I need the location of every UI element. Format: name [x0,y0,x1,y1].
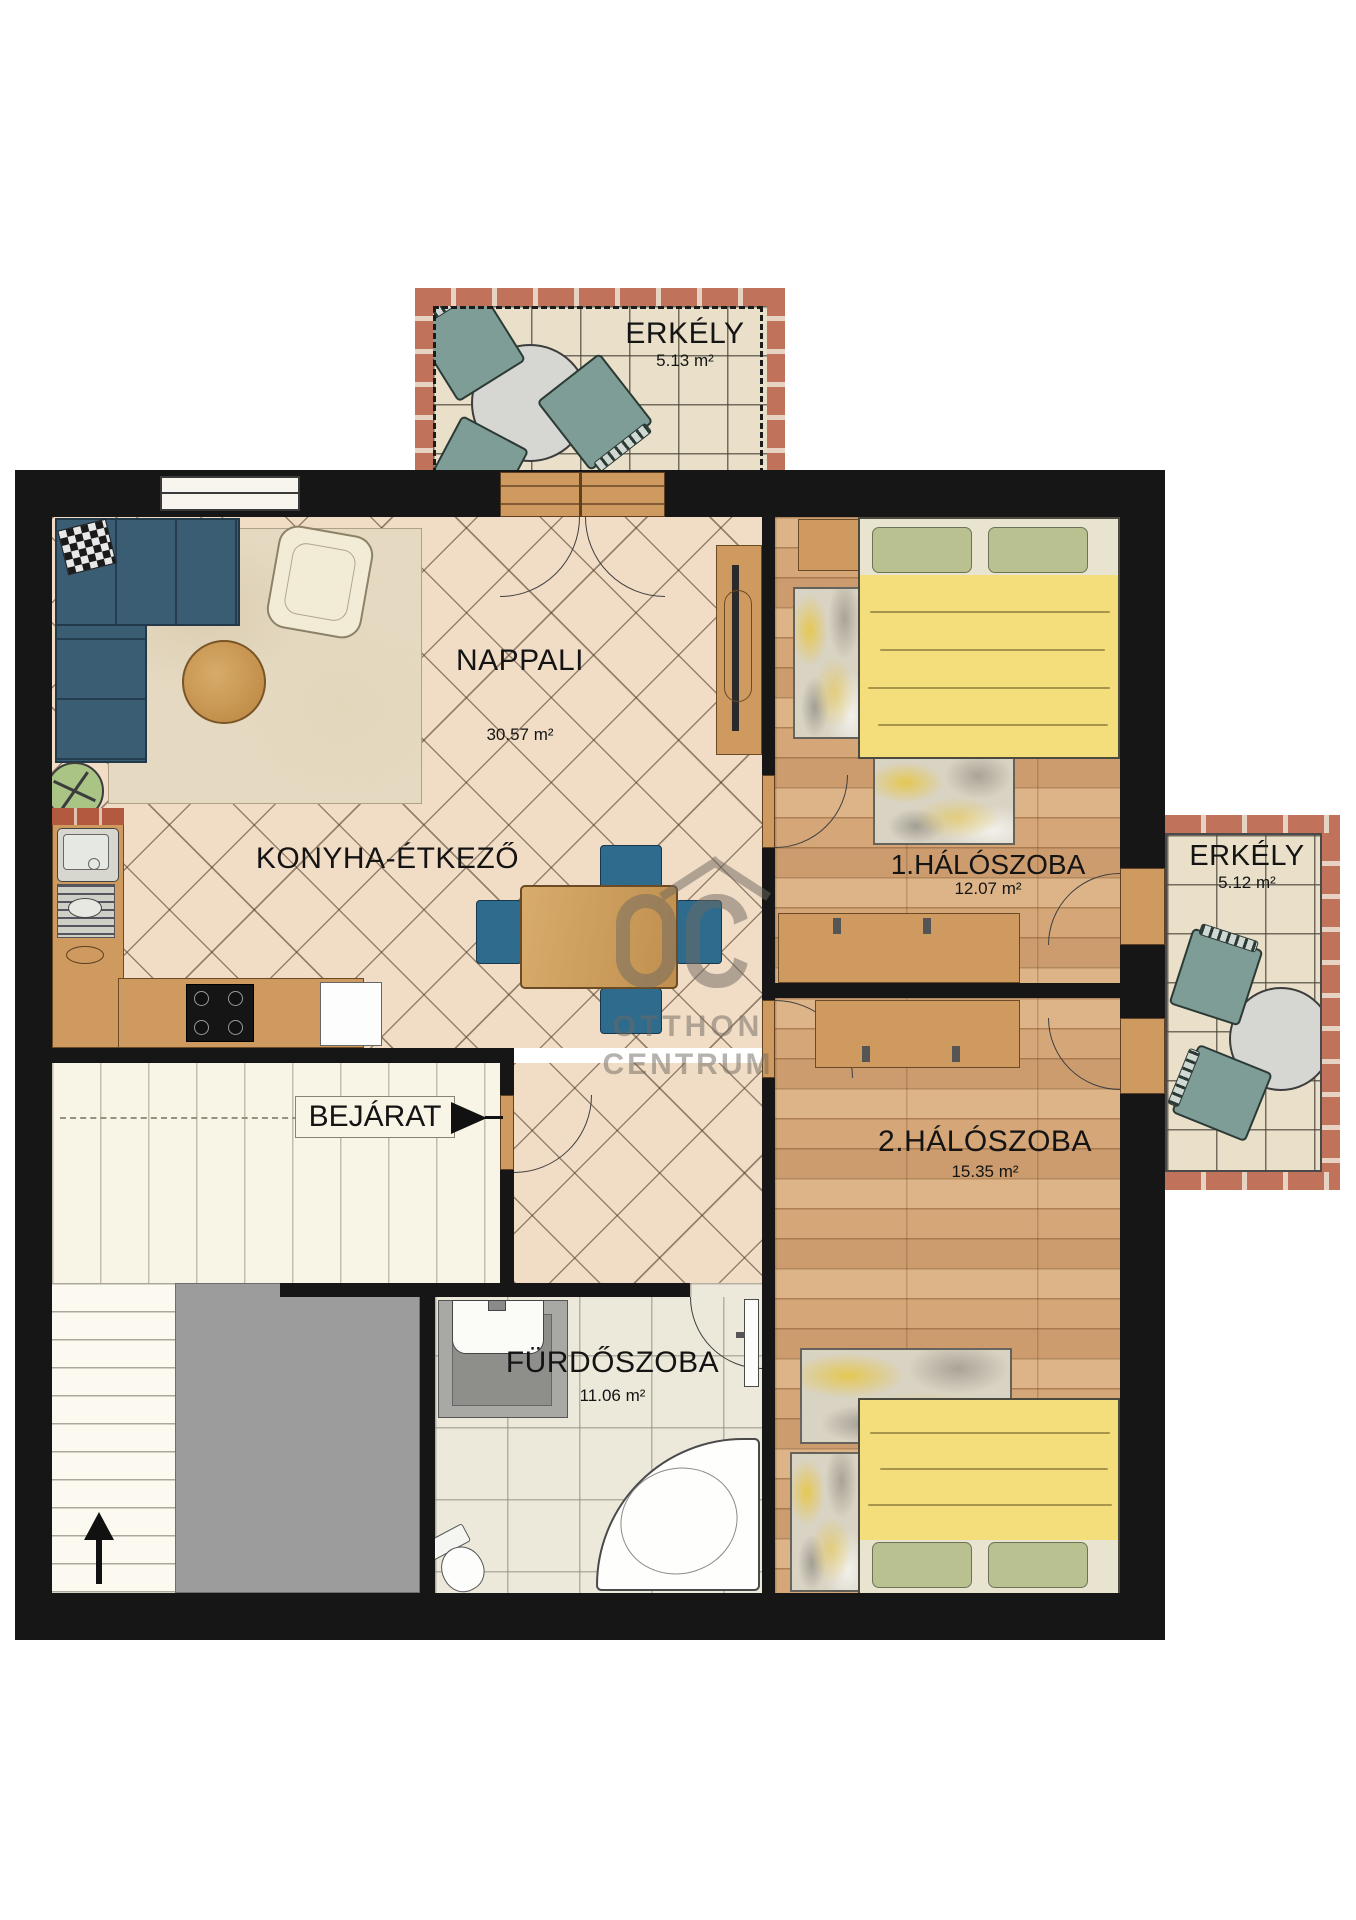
kitchen-sink-drain [88,858,100,870]
dining-table [520,885,678,989]
wardrobe-handle [952,1046,960,1062]
blanket-fold [870,611,1110,613]
room-area-bathroom: 11.06 m² [490,1387,735,1405]
door-handle [736,1332,745,1338]
staircase-void [175,1283,420,1593]
blanket-fold [868,1504,1112,1506]
balcony-top-brick-top [415,288,785,306]
wall-kitchen-hall [15,1048,514,1063]
dining-chair [476,900,522,964]
blanket-fold [870,1432,1110,1434]
kitchen-shelf-brick [52,808,124,825]
balcony-right-brick-right [1322,833,1340,1172]
balcony-right-brick-top [1165,815,1340,833]
wall-bedroom-divider [775,983,1120,998]
bedroom1-bed [858,517,1120,759]
bedroom2-balcony-door [1120,1018,1165,1094]
room-label-bedroom1: 1.HÁLÓSZOBA [868,850,1108,879]
window [160,476,300,511]
room-area-living: 30.57 m² [440,726,600,744]
bedroom2-bed [858,1398,1120,1594]
bedroom1-wardrobe [778,913,1020,983]
balcony-top-brick-left [415,288,433,472]
cooktop-burner [228,1020,243,1035]
blanket-fold [868,687,1110,689]
balcony-door-top [500,472,665,517]
bedroom2-side-rug [790,1452,860,1592]
floor-plan: ERKÉLY 5.13 m² ERKÉLY 5.12 m² [0,0,1356,1920]
bedroom1-foot-rug [873,757,1015,845]
bed-pillow [988,527,1088,573]
wall-bath-top [280,1283,690,1297]
wall-outer-bottom [15,1593,1165,1640]
bed-pillow [872,1542,972,1588]
room-label-bedroom2: 2.HÁLÓSZOBA [865,1126,1105,1158]
stairs-up-arrow-stem [96,1538,102,1584]
room-label-bathroom: FÜRDŐSZOBA [490,1347,735,1379]
blanket-fold [878,724,1108,726]
room-label-balcony-top: ERKÉLY [600,318,770,350]
dish-rack-bowl [68,898,102,918]
bathroom-door-threshold [690,1283,762,1297]
bedroom2-door [762,1000,775,1078]
wall-hall-stub-top [500,1063,514,1095]
entrance-arrow-line [485,1116,503,1119]
blanket-fold [880,1468,1108,1470]
bedroom1-side-rug [793,587,863,739]
bedroom1-balcony-door [1120,868,1165,945]
kitchen-sink-basin [63,834,109,870]
bedroom1-door [762,775,775,848]
wardrobe-handle [862,1046,870,1062]
dining-chair [600,988,662,1034]
staircase-steps [52,1283,175,1593]
room-area-balcony-right: 5.12 m² [1172,874,1322,892]
nightstand [798,519,860,571]
sink-faucet [488,1300,506,1311]
coffee-table [182,640,266,724]
entrance-arrow-icon [451,1102,487,1134]
bathroom-door-leaf [744,1299,759,1387]
armchair-cushion [282,541,358,623]
blanket-fold [880,649,1105,651]
room-label-entrance: BEJÁRAT [297,1101,453,1133]
wall-bath-left [420,1283,435,1595]
balcony-top-brick-right [767,288,785,472]
room-area-bedroom2: 15.35 m² [865,1163,1105,1181]
entry-door [500,1095,514,1170]
balcony-right-brick-bottom [1165,1172,1340,1190]
bedroom2-wardrobe [815,1000,1020,1068]
bed-pillow [988,1542,1088,1588]
tv-cabinet-detail [724,590,752,702]
stairs-up-arrow-icon [84,1512,114,1540]
room-label-living: NAPPALI [440,645,600,677]
room-area-bedroom1: 12.07 m² [868,880,1108,898]
wardrobe-handle [923,918,931,934]
room-label-balcony-right: ERKÉLY [1172,841,1322,871]
cooktop-burner [194,991,209,1006]
room-label-kitchen: KONYHA-ÉTKEZŐ [230,843,545,875]
kitchen-drawer-oval [66,946,104,964]
dining-chair [676,900,722,964]
wardrobe-handle [833,918,841,934]
room-area-balcony-top: 5.13 m² [600,352,770,370]
wall-hall-stub-bottom [500,1170,514,1283]
cooktop-burner [194,1020,209,1035]
cooktop-burner [228,991,243,1006]
bed-pillow [872,527,972,573]
fridge [320,982,382,1046]
